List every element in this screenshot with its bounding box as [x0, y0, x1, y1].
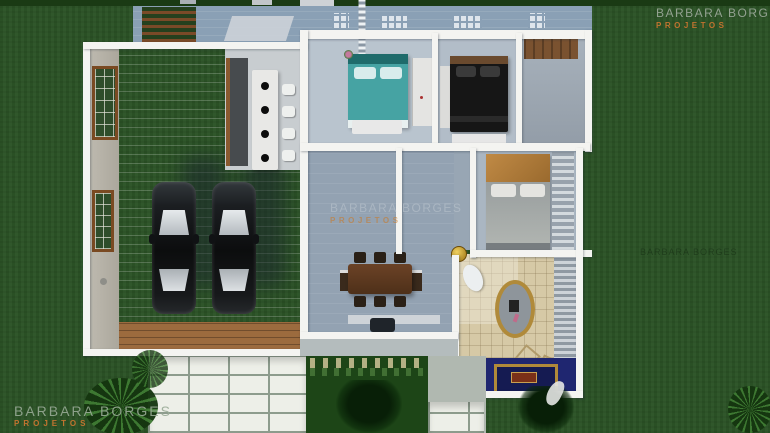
- skylight: [452, 15, 482, 30]
- wall-segment: [432, 33, 438, 147]
- wall-segment: [470, 148, 476, 258]
- wall-segment: [83, 349, 307, 356]
- wall-segment: [470, 250, 592, 257]
- bed-headboard: [450, 56, 508, 64]
- brand-subtitle: PROJETOS: [656, 21, 770, 30]
- bar-stool: [282, 84, 295, 95]
- paver-corner: [428, 402, 484, 433]
- dining-chair: [394, 296, 406, 307]
- watermark-top-right: BARBARA BORGES PROJETOS: [656, 7, 770, 30]
- wardrobe-handle: [420, 96, 423, 99]
- bar-stool: [282, 128, 295, 139]
- vanity-sink: [509, 300, 519, 312]
- wall-segment: [300, 30, 592, 39]
- brand-name: BARBARA BORGES: [640, 247, 738, 257]
- car-rear-window: [159, 269, 189, 291]
- watermark-bottom-left: BARBARA BORGES PROJETOS: [14, 403, 172, 428]
- kitchen-island: [252, 70, 278, 170]
- vanity-oval-mirror: [495, 280, 535, 338]
- car-mirror: [149, 234, 155, 244]
- watermark-center: BARBARA BORGES PROJETOS: [330, 202, 462, 225]
- cooktop-burner: [261, 154, 269, 162]
- wall-segment: [300, 332, 458, 339]
- kitchen-cabinets: [226, 58, 248, 166]
- closet-shelf: [524, 39, 578, 59]
- dining-table: [348, 264, 412, 294]
- tree: [336, 380, 402, 433]
- skylight: [528, 13, 545, 30]
- bar-stool: [282, 150, 295, 161]
- car-mirror: [193, 234, 199, 244]
- vanity-accessory: [513, 314, 519, 323]
- roof-fragment: [252, 0, 272, 5]
- bed-pillow: [520, 184, 545, 197]
- wall-segment: [576, 148, 583, 398]
- bed-headboard: [348, 54, 408, 64]
- brand-subtitle: PROJETOS: [14, 419, 172, 428]
- wall-segment: [83, 42, 90, 355]
- shower-screen: [554, 254, 576, 366]
- car-rear-window: [219, 269, 249, 291]
- wall-segment: [516, 33, 522, 147]
- wall-segment: [585, 30, 592, 152]
- wardrobe: [440, 66, 450, 128]
- dining-chair: [354, 252, 366, 263]
- skylight: [380, 15, 407, 30]
- patio-tiles: [224, 16, 294, 41]
- rug: [452, 134, 506, 143]
- bed-pillow: [456, 66, 476, 77]
- plant-vase: [344, 50, 353, 59]
- palm-plant: [132, 350, 168, 388]
- dining-chair: [374, 252, 386, 263]
- tv-console: [370, 318, 395, 332]
- cooktop-burner: [261, 82, 269, 90]
- bath-rug-medallion: [511, 372, 537, 383]
- car-right: [212, 182, 256, 314]
- wall-sconce: [100, 278, 107, 285]
- car-windshield: [159, 210, 189, 235]
- bed-pillow: [480, 66, 500, 77]
- bed-pillow: [491, 184, 516, 197]
- dining-chair: [374, 296, 386, 307]
- car-mirror: [253, 234, 259, 244]
- bed-foot: [486, 243, 550, 250]
- car-mirror: [209, 234, 215, 244]
- wall-segment: [300, 143, 590, 151]
- garden-plants-row: [310, 368, 424, 376]
- brand-name: BARBARA BORGES: [14, 403, 172, 419]
- roof-fragment: [180, 0, 196, 4]
- floor-plan-render: BARBARA BORGES PROJETOS BARBARA BORGES P…: [0, 0, 770, 433]
- rug: [352, 120, 402, 134]
- watermark-faint-right: BARBARA BORGES: [640, 247, 738, 257]
- skylight: [332, 13, 349, 30]
- bed-teal: [348, 54, 408, 128]
- dining-chair-end: [412, 270, 422, 291]
- dining-chair: [354, 296, 366, 307]
- bed-pillow: [380, 67, 402, 79]
- pergola: [142, 7, 196, 42]
- car-windshield: [219, 210, 249, 235]
- bed-master: [486, 154, 550, 250]
- bar-stool: [282, 106, 295, 117]
- bed-pillow: [354, 67, 376, 79]
- patio-slab: [300, 339, 458, 356]
- cooktop-burner: [261, 106, 269, 114]
- brand-name: BARBARA BORGES: [330, 202, 462, 216]
- wall-segment: [83, 42, 307, 49]
- closet-shelving: [552, 152, 574, 250]
- brand-subtitle: PROJETOS: [330, 216, 462, 225]
- wall-segment: [300, 30, 308, 354]
- garden-plants-row: [310, 358, 424, 368]
- bed-dark: [450, 56, 508, 132]
- garage-deck: [119, 322, 305, 352]
- palm-plant: [728, 386, 770, 433]
- bed-headboard: [486, 154, 550, 182]
- bed-fold: [450, 116, 508, 122]
- car-left: [152, 182, 196, 314]
- cooktop-burner: [261, 130, 269, 138]
- brand-name: BARBARA BORGES: [656, 7, 770, 21]
- window: [92, 66, 118, 140]
- window: [92, 190, 114, 252]
